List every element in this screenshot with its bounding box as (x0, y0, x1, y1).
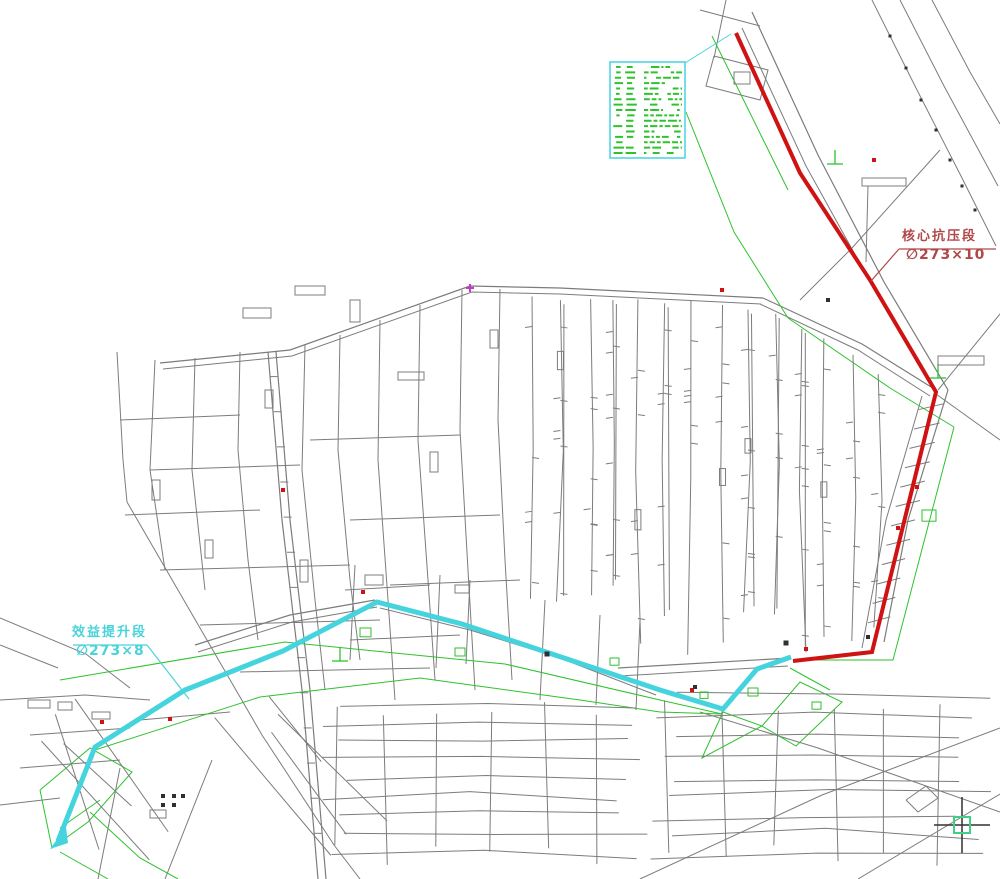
cad-viewport[interactable]: 核心抗压段 ∅273×10 效益提升段 ∅273×8 (0, 0, 1000, 879)
cad-drawing (0, 0, 1000, 879)
